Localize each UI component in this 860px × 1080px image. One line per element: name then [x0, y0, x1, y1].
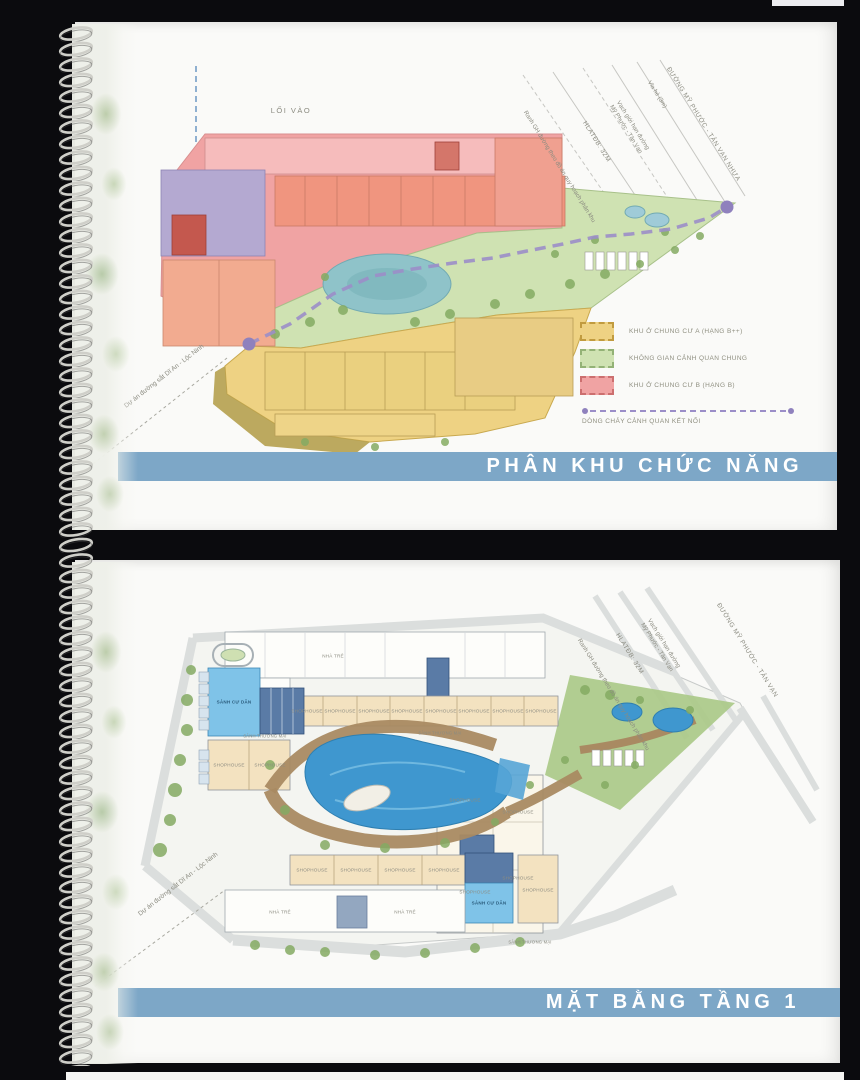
legend-item-common-space: KHÔNG GIAN CẢNH QUAN CHUNG [580, 349, 825, 368]
entry-label: LỐI VÀO [261, 106, 321, 115]
shophouse-label: SHOPHOUSE [425, 709, 456, 714]
page-zoning-plan: LỐI VÀO Ranh GH đường theo đồ án quy hoạ… [75, 22, 837, 530]
page-ground-floor-plan: Ranh GH đường theo đồ án quy hoạch phân … [75, 560, 840, 1063]
legend-swatch-green [580, 349, 614, 368]
legend-label: KHU Ở CHUNG CƯ B (HẠNG B) [614, 382, 735, 389]
nursery-label: NHÀ TRẺ [394, 910, 415, 915]
legend-item-zone-b: KHU Ở CHUNG CƯ B (HẠNG B) [580, 376, 825, 395]
spiral-binding [56, 26, 100, 1066]
parking-island [221, 649, 245, 661]
lake-inner [347, 268, 427, 300]
shophouse-label: SHOPHOUSE [340, 868, 371, 873]
shophouse-label: SHOPHOUSE [324, 709, 355, 714]
resident-lobby-label: SẢNH CƯ DÂN [472, 901, 507, 906]
shophouse-label: SHOPHOUSE [213, 763, 244, 768]
shophouse-label: SHOPHOUSE [502, 876, 533, 881]
legend-flow-line-icon [582, 407, 794, 414]
nursery-label: NHÀ TRẺ [322, 654, 343, 659]
shophouse-label: SHOPHOUSE [525, 709, 556, 714]
legend-item-zone-a: KHU Ở CHUNG CƯ A (HẠNG B++) [580, 322, 825, 341]
shophouse-label: SHOPHOUSE [458, 709, 489, 714]
shophouse-label: SHOPHOUSE [502, 810, 533, 815]
shophouse-label: SHOPHOUSE [384, 868, 415, 873]
page-edge-sliver-top [772, 0, 844, 6]
shophouse-label: SHOPHOUSE [358, 709, 389, 714]
shophouse-label: SHOPHOUSE [449, 798, 480, 803]
pond-icon [645, 213, 669, 227]
parking-column-left [199, 672, 209, 784]
shophouse-label: SHOPHOUSE [428, 868, 459, 873]
commercial-lobby-label: SẢNH THƯƠNG MẠI [508, 940, 551, 945]
page1-title: PHÂN KHU CHỨC NĂNG [487, 452, 837, 481]
page-edge-sliver-bottom [66, 1072, 844, 1080]
page2-title: MẶT BẰNG TẦNG 1 [546, 988, 840, 1017]
shophouse-label: SHOPHOUSE [492, 709, 523, 714]
legend-swatch-pink [580, 376, 614, 395]
page1-title-bar: PHÂN KHU CHỨC NĂNG [118, 452, 837, 481]
shophouse-label: SHOPHOUSE [291, 709, 322, 714]
page2-title-bar: MẶT BẰNG TẦNG 1 [118, 988, 840, 1017]
shophouse-label: SHOPHOUSE [522, 888, 553, 893]
legend-label: KHU Ở CHUNG CƯ A (HẠNG B++) [614, 328, 743, 335]
shophouse-label: SHOPHOUSE [296, 868, 327, 873]
commercial-lobby-label: SẢNH THƯƠNG MẠI [243, 734, 286, 739]
legend: KHU Ở CHUNG CƯ A (HẠNG B++) KHÔNG GIAN C… [580, 322, 825, 425]
legend-swatch-yellow [580, 322, 614, 341]
commercial-lobby-label: SẢNH THƯƠNG MẠI [418, 731, 461, 736]
pond-icon [625, 206, 645, 218]
shophouse-label: SHOPHOUSE [459, 890, 490, 895]
shophouse-label: SHOPHOUSE [254, 763, 285, 768]
legend-flow-label: DÒNG CHẢY CẢNH QUAN KẾT NỐI [582, 418, 825, 425]
resident-lobby-label: SẢNH CƯ DÂN [217, 700, 252, 705]
legend-label: KHÔNG GIAN CẢNH QUAN CHUNG [614, 355, 747, 362]
nursery-label: NHÀ TRẺ [269, 910, 290, 915]
shophouse-label: SHOPHOUSE [391, 709, 422, 714]
